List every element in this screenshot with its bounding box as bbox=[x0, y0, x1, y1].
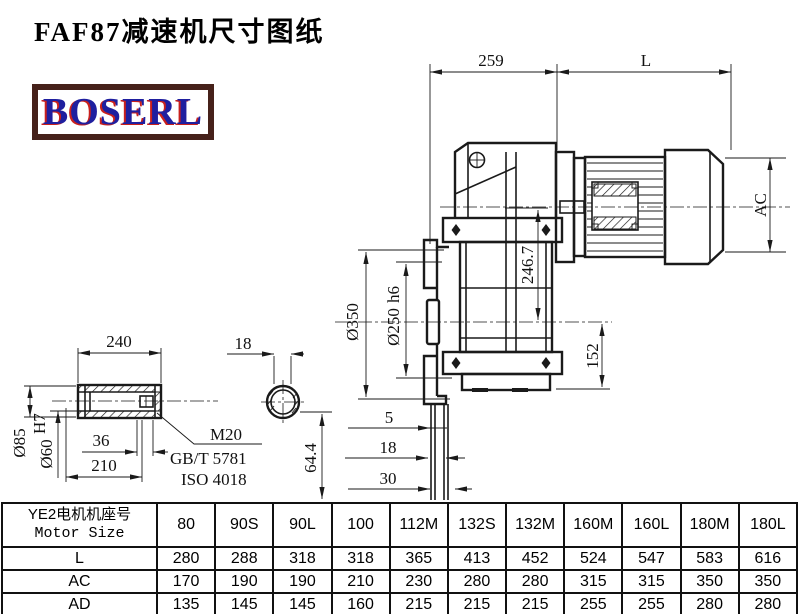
dim-key18: 18 bbox=[235, 334, 252, 353]
table-cell: 547 bbox=[622, 547, 680, 570]
dim-d60: Ø60 bbox=[37, 439, 56, 468]
dim-AC: AC bbox=[751, 193, 770, 217]
table-cell: 413 bbox=[448, 547, 506, 570]
table-row-AD: AD 135 145 145 160 215 215 215 255 255 2… bbox=[2, 593, 797, 614]
col-header: 132M bbox=[506, 503, 564, 547]
table-cell: 145 bbox=[273, 593, 331, 614]
table-cell: 350 bbox=[681, 570, 739, 593]
dim-152: 152 bbox=[583, 343, 602, 369]
row-label: AC bbox=[2, 570, 157, 593]
label-m20: M20 bbox=[210, 425, 242, 444]
table-row-AC: AC 170 190 190 210 230 280 280 315 315 3… bbox=[2, 570, 797, 593]
table-cell: 280 bbox=[157, 547, 215, 570]
table-cell: 280 bbox=[681, 593, 739, 614]
table-cell: 318 bbox=[332, 547, 390, 570]
end-bolt bbox=[140, 396, 153, 407]
col-header: 180M bbox=[681, 503, 739, 547]
header-cn: YE2电机机座号 bbox=[3, 506, 156, 525]
table-header-row: YE2电机机座号 Motor Size 80 90S 90L 100 112M … bbox=[2, 503, 797, 547]
table-cell: 350 bbox=[739, 570, 797, 593]
dim-36: 36 bbox=[93, 431, 110, 450]
header-en: Motor Size bbox=[3, 525, 156, 544]
table-cell: 170 bbox=[157, 570, 215, 593]
table-cell: 280 bbox=[506, 570, 564, 593]
table-cell: 365 bbox=[390, 547, 448, 570]
table-cell: 230 bbox=[390, 570, 448, 593]
dim-18: 18 bbox=[380, 438, 397, 457]
table-cell: 215 bbox=[506, 593, 564, 614]
row-label: L bbox=[2, 547, 157, 570]
dim-259: 259 bbox=[478, 51, 504, 70]
table-cell: 315 bbox=[564, 570, 622, 593]
dim-d60-tol: H7 bbox=[30, 413, 49, 434]
bolt-icon bbox=[542, 357, 551, 369]
col-header: 112M bbox=[390, 503, 448, 547]
dimension-lines-main: 259 L AC Ø350 Ø250 h6 246.7 152 bbox=[300, 51, 786, 499]
shaft-detail bbox=[52, 380, 305, 424]
label-iso4018: ISO 4018 bbox=[181, 470, 247, 489]
shaft-end-view bbox=[261, 380, 305, 424]
dim-d250: Ø250 bbox=[384, 308, 403, 346]
table-cell: 190 bbox=[273, 570, 331, 593]
row-label: AD bbox=[2, 593, 157, 614]
dim-d250-tol: h6 bbox=[384, 286, 403, 303]
dim-d85: Ø85 bbox=[10, 428, 29, 457]
dim-d350: Ø350 bbox=[343, 303, 362, 341]
table-cell: 280 bbox=[739, 593, 797, 614]
dim-210: 210 bbox=[91, 456, 117, 475]
bolt-icon bbox=[469, 152, 485, 168]
col-header: 132S bbox=[448, 503, 506, 547]
table-cell: 616 bbox=[739, 547, 797, 570]
table-cell: 288 bbox=[215, 547, 273, 570]
table-cell: 215 bbox=[448, 593, 506, 614]
table-cell: 160 bbox=[332, 593, 390, 614]
gearbox-body bbox=[443, 143, 562, 392]
dim-30: 30 bbox=[380, 469, 397, 488]
bolt-icon bbox=[542, 224, 551, 236]
table-cell: 583 bbox=[681, 547, 739, 570]
col-header: 100 bbox=[332, 503, 390, 547]
dimension-drawing: 259 L AC Ø350 Ø250 h6 246.7 152 bbox=[0, 0, 800, 503]
label-gbt5781: GB/T 5781 bbox=[170, 449, 247, 468]
bolt-icon bbox=[452, 224, 461, 236]
col-header: 160L bbox=[622, 503, 680, 547]
table-cell: 524 bbox=[564, 547, 622, 570]
col-header: 90L bbox=[273, 503, 331, 547]
table-cell: 255 bbox=[564, 593, 622, 614]
dim-5: 5 bbox=[385, 408, 394, 427]
col-header: 160M bbox=[564, 503, 622, 547]
col-header: 80 bbox=[157, 503, 215, 547]
table-cell: 215 bbox=[390, 593, 448, 614]
table-cell: 452 bbox=[506, 547, 564, 570]
dim-240: 240 bbox=[106, 332, 132, 351]
table-row-L: L 280 288 318 318 365 413 452 524 547 58… bbox=[2, 547, 797, 570]
motor-size-table: YE2电机机座号 Motor Size 80 90S 90L 100 112M … bbox=[1, 502, 798, 614]
table-cell: 255 bbox=[622, 593, 680, 614]
dim-2467: 246.7 bbox=[518, 245, 537, 284]
table-cell: 190 bbox=[215, 570, 273, 593]
col-header: 90S bbox=[215, 503, 273, 547]
dim-L: L bbox=[641, 51, 651, 70]
table-cell: 315 bbox=[622, 570, 680, 593]
table-cell: 318 bbox=[273, 547, 331, 570]
bolt-icon bbox=[452, 357, 461, 369]
stator-block bbox=[592, 182, 638, 230]
table-corner-header: YE2电机机座号 Motor Size bbox=[2, 503, 157, 547]
drawing-sheet: FAF87减速机尺寸图纸 BOSERL bbox=[0, 0, 800, 614]
table-cell: 210 bbox=[332, 570, 390, 593]
dim-644: 64.4 bbox=[301, 443, 320, 473]
col-header: 180L bbox=[739, 503, 797, 547]
output-flange bbox=[424, 240, 449, 500]
table-cell: 145 bbox=[215, 593, 273, 614]
table-cell: 135 bbox=[157, 593, 215, 614]
table-cell: 280 bbox=[448, 570, 506, 593]
